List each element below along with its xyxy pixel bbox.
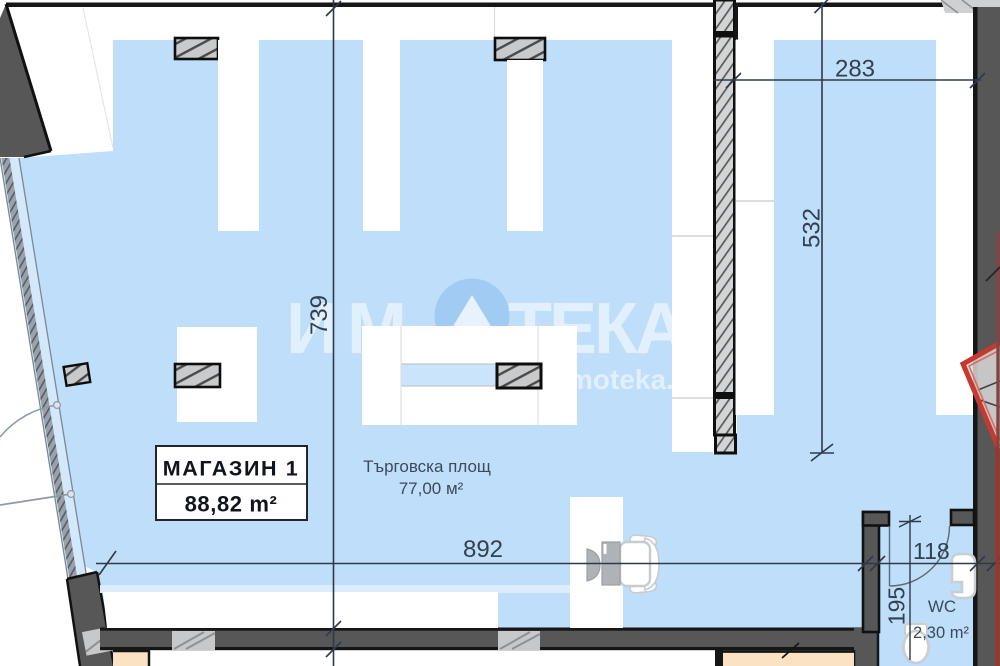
svg-text:Търговска площ: Търговска площ: [363, 457, 491, 476]
svg-text:WC: WC: [928, 597, 956, 616]
svg-text:283: 283: [835, 56, 875, 83]
svg-text:892: 892: [463, 536, 503, 563]
svg-text:118: 118: [913, 538, 950, 564]
svg-text:739: 739: [306, 295, 333, 335]
svg-text:77,00 м²: 77,00 м²: [399, 479, 464, 498]
svg-text:532: 532: [799, 208, 826, 248]
svg-text:МАГАЗИН 1: МАГАЗИН 1: [163, 457, 300, 481]
svg-text:2,30 m²: 2,30 m²: [913, 624, 969, 642]
svg-text:88,82 m²: 88,82 m²: [185, 492, 278, 517]
svg-text:195: 195: [884, 587, 910, 625]
